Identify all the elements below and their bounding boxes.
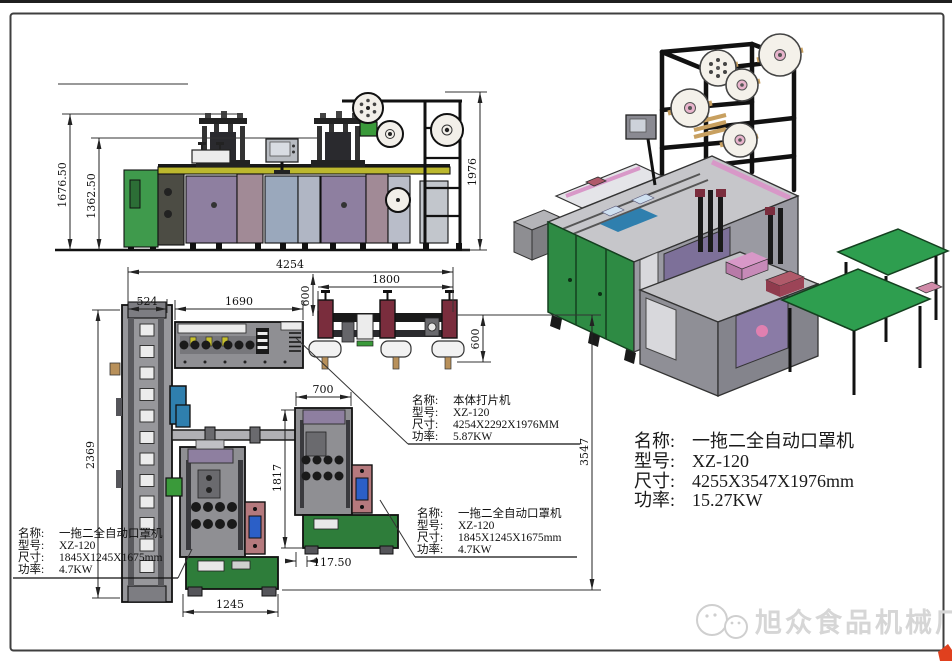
plan-right-mask-machine: [295, 408, 398, 554]
svg-text:尺寸:: 尺寸:: [18, 550, 44, 564]
svg-text:2369: 2369: [84, 441, 97, 469]
svg-text:1362.50: 1362.50: [85, 173, 98, 219]
svg-text:1800: 1800: [372, 273, 400, 286]
isometric-view: [514, 34, 948, 396]
front-purple-panel-2: [321, 176, 366, 243]
svg-text:1676.50: 1676.50: [56, 162, 69, 208]
plan-right-header: [303, 410, 345, 424]
svg-text:XZ-120: XZ-120: [59, 540, 96, 552]
monitor-screen: [270, 142, 290, 156]
svg-text:5.87KW: 5.87KW: [453, 431, 492, 443]
plan-left-screen: [249, 516, 261, 538]
svg-text:本体打片机: 本体打片机: [453, 393, 511, 407]
svg-text:4255X3547X1976mm: 4255X3547X1976mm: [692, 471, 854, 491]
svg-text:600: 600: [299, 286, 312, 307]
top-edge-bar: [0, 0, 952, 3]
svg-text:4254X2292X1976MM: 4254X2292X1976MM: [453, 419, 559, 431]
dim-body-width: 1690: [175, 295, 303, 320]
svg-text:一拖二全自动口罩机: 一拖二全自动口罩机: [59, 526, 163, 540]
corner-red-mark: [938, 644, 952, 661]
drawing-sheet: 1676.50 1362.50 1976: [0, 0, 952, 661]
watermark-text: 旭众食品机械厂: [755, 607, 952, 638]
dim-mask-width: 700: [296, 383, 351, 406]
watermark: 旭众食品机械厂: [697, 605, 952, 638]
front-view: [55, 84, 470, 250]
dim-stand-offset: 600: [299, 274, 313, 316]
svg-text:1245: 1245: [216, 598, 244, 611]
dim-mask-offset: 117.50: [288, 552, 352, 569]
svg-text:尺寸:: 尺寸:: [634, 471, 675, 491]
svg-text:型号:: 型号:: [412, 405, 438, 419]
svg-text:4254: 4254: [276, 258, 304, 271]
iso-material-rolls: [668, 34, 803, 157]
plan-view: [110, 290, 464, 602]
dim-plan-total-width: 4254: [128, 258, 453, 312]
front-mauve-panel-1: [237, 174, 263, 243]
svg-text:1845X1245X1675mm: 1845X1245X1675mm: [59, 552, 163, 564]
plan-left-header: [188, 449, 233, 463]
svg-text:XZ-120: XZ-120: [692, 451, 749, 471]
svg-text:功率:: 功率:: [18, 562, 44, 576]
svg-text:4.7KW: 4.7KW: [59, 564, 93, 576]
svg-text:名称:: 名称:: [412, 393, 438, 407]
svg-text:功率:: 功率:: [417, 542, 443, 556]
drawing-canvas: 1676.50 1362.50 1976: [0, 0, 952, 661]
plan-roll-stand: [309, 290, 464, 369]
svg-text:1817: 1817: [271, 464, 284, 492]
svg-text:型号:: 型号:: [634, 451, 675, 471]
plan-right-screen: [356, 478, 368, 500]
svg-text:型号:: 型号:: [18, 538, 44, 552]
svg-text:XZ-120: XZ-120: [458, 520, 495, 532]
svg-text:XZ-120: XZ-120: [453, 407, 490, 419]
spec-block-overall-machine: 名称:一拖二全自动口罩机 型号:XZ-120 尺寸:4255X3547X1976…: [634, 431, 854, 510]
deck-yellow-strip: [158, 167, 450, 174]
dim-mask-base-width: 1245: [183, 594, 278, 617]
svg-text:600: 600: [469, 329, 482, 350]
guide-block: [360, 122, 377, 136]
plan-body-cutter: [175, 322, 303, 368]
plan-left-mask-machine: [166, 440, 278, 596]
front-mauve-panel-2: [366, 174, 388, 243]
material-roll-small: [386, 188, 410, 212]
svg-text:名称:: 名称:: [417, 506, 443, 520]
spec-block-right-mask-unit: 名称:一拖二全自动口罩机 型号:XZ-120 尺寸:1845X1245X1675…: [380, 500, 577, 557]
svg-text:4.7KW: 4.7KW: [458, 544, 492, 556]
svg-text:700: 700: [313, 383, 334, 396]
svg-text:尺寸:: 尺寸:: [412, 417, 438, 431]
svg-text:117.50: 117.50: [313, 556, 352, 569]
svg-text:1976: 1976: [466, 158, 479, 186]
front-bluegray-door: [265, 176, 298, 243]
svg-text:一拖二全自动口罩机: 一拖二全自动口罩机: [692, 431, 854, 451]
front-green-cabinet: [124, 170, 158, 247]
plan-stand-rolls: [309, 341, 464, 357]
svg-text:1845X1245X1675mm: 1845X1245X1675mm: [458, 532, 562, 544]
material-roll-2: [377, 121, 403, 147]
plan-transfer-rail: [172, 405, 298, 443]
svg-text:1690: 1690: [225, 295, 253, 308]
material-roll-3: [431, 114, 463, 146]
front-dark-panel: [158, 173, 184, 245]
svg-text:型号:: 型号:: [417, 518, 443, 532]
svg-text:名称:: 名称:: [634, 431, 675, 451]
material-roll-star: [353, 93, 383, 123]
svg-text:3547: 3547: [578, 438, 591, 466]
svg-text:524: 524: [137, 295, 158, 308]
front-purple-panel-1: [186, 176, 237, 243]
svg-text:一拖二全自动口罩机: 一拖二全自动口罩机: [458, 506, 562, 520]
plan-left-green-arm: [166, 478, 182, 496]
svg-text:尺寸:: 尺寸:: [417, 530, 443, 544]
svg-text:名称:: 名称:: [18, 526, 44, 540]
svg-text:功率:: 功率:: [634, 490, 675, 510]
svg-text:15.27KW: 15.27KW: [692, 490, 763, 510]
svg-text:功率:: 功率:: [412, 429, 438, 443]
wechat-icon: [697, 605, 747, 638]
